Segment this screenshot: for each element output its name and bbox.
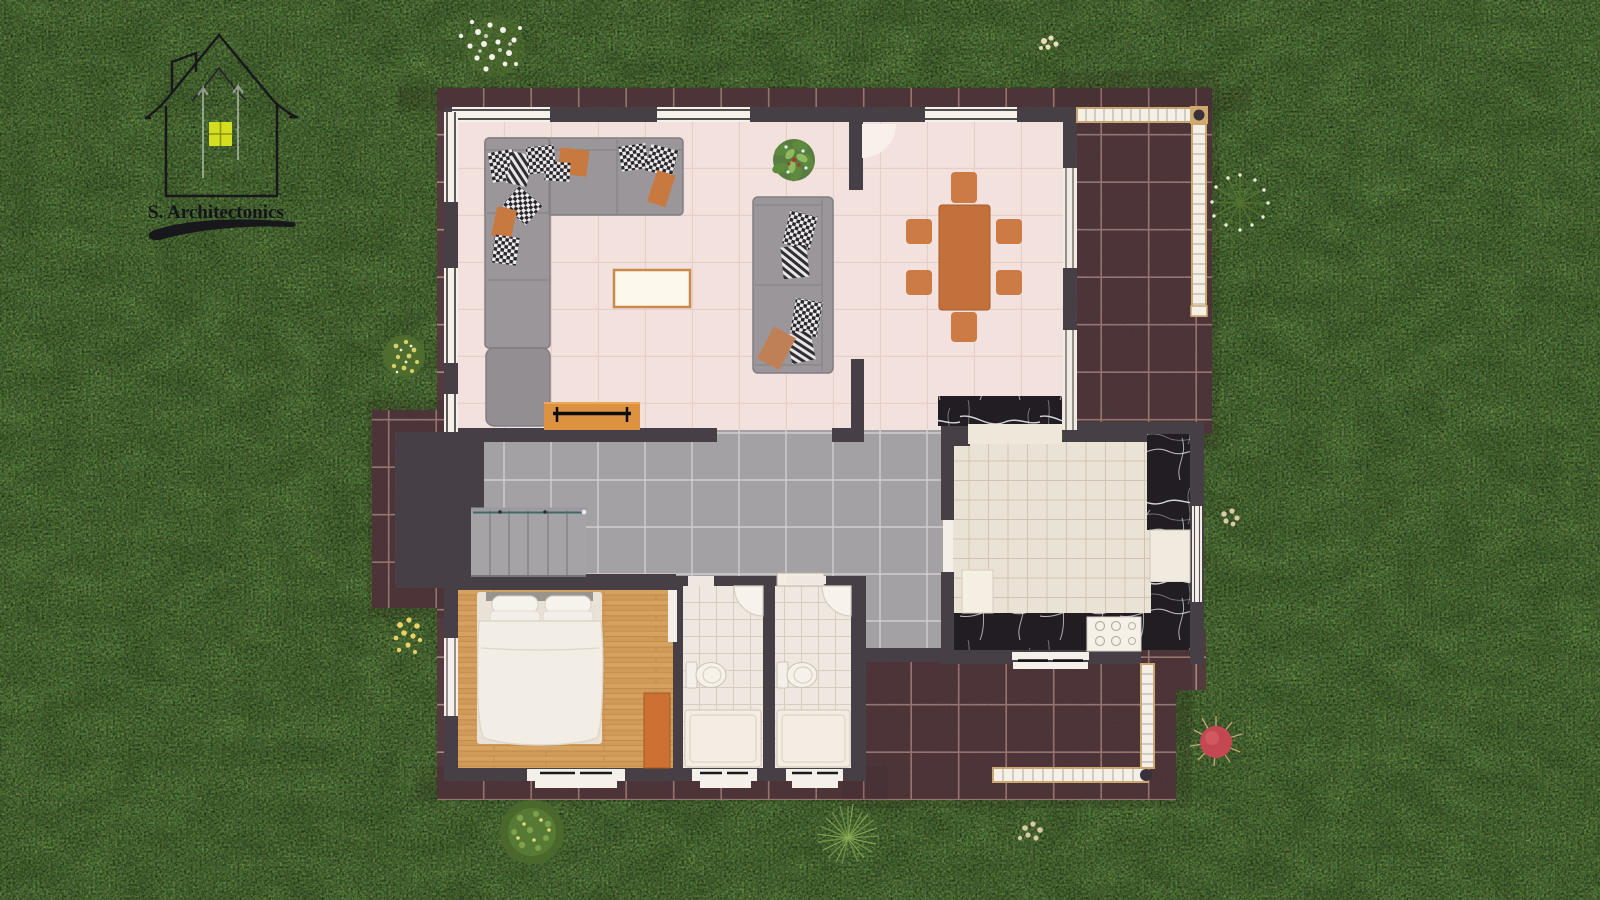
svg-text:S. Architectonics: S. Architectonics — [148, 202, 284, 223]
